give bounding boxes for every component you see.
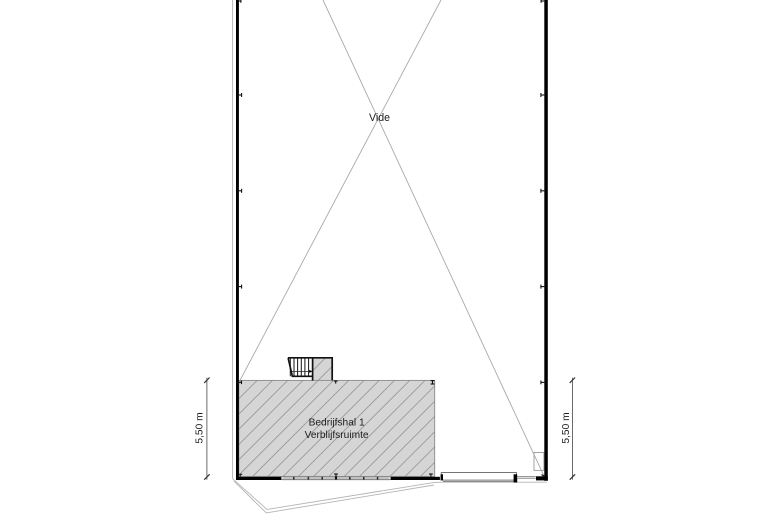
svg-text:5,50 m: 5,50 m xyxy=(561,412,572,443)
svg-text:Verblijfsruimte: Verblijfsruimte xyxy=(305,430,369,441)
svg-text:Bedrijfshal 1: Bedrijfshal 1 xyxy=(309,417,365,428)
svg-text:5,50 m: 5,50 m xyxy=(195,412,206,443)
svg-text:Vide: Vide xyxy=(369,112,390,124)
